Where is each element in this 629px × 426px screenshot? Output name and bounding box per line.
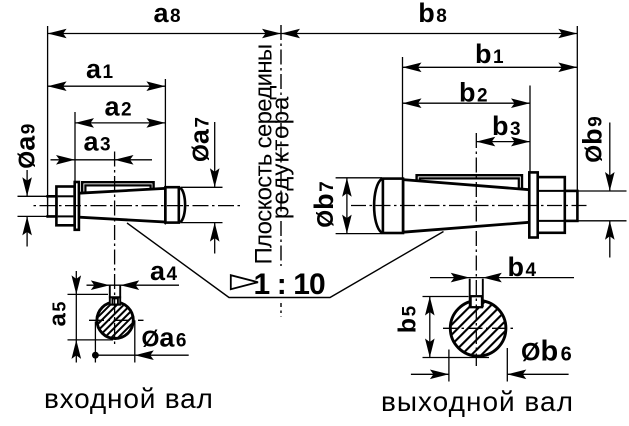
svg-text:1 : 10: 1 : 10 [254, 268, 326, 301]
svg-text:редуктора: редуктора [268, 95, 295, 219]
svg-text:выходной вал: выходной вал [381, 386, 574, 417]
svg-text:a5: a5 [45, 302, 72, 327]
svg-text:входной вал: входной вал [44, 383, 214, 414]
